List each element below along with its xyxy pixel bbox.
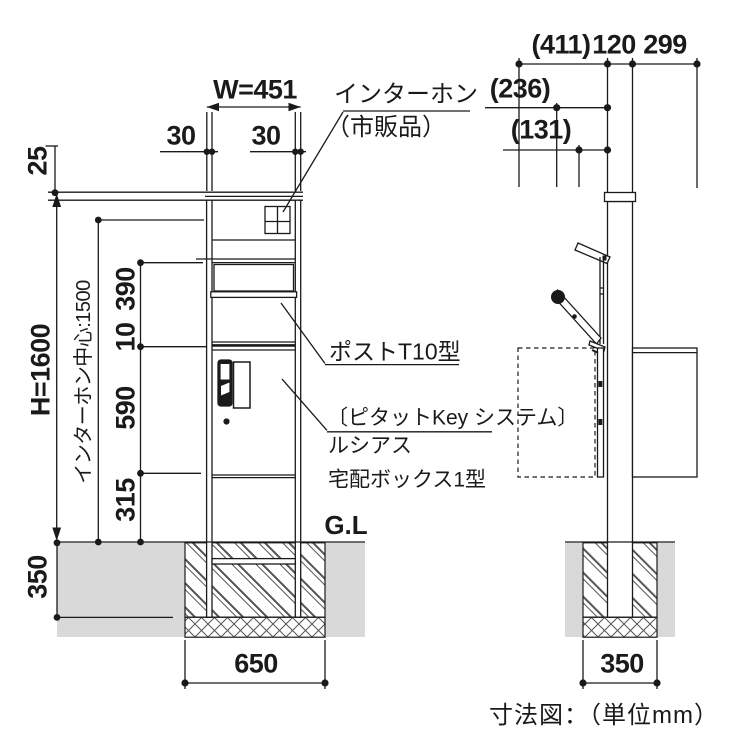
ground-side-right <box>657 543 675 637</box>
right-post <box>295 200 300 617</box>
ground-level-label: G.L <box>324 512 367 538</box>
dim-post-depth-label: 120 <box>592 32 636 59</box>
foundation-gravel-side <box>583 617 657 637</box>
intercom-note-label: （市販品） <box>326 116 446 140</box>
dim-post-width-right-label: 30 <box>251 123 280 150</box>
dim-box-section-label: 590 <box>113 386 140 430</box>
dim-flap-open-reach-label: (411) <box>531 32 590 59</box>
delivery-box-side <box>633 348 698 477</box>
foundation-tie-bar <box>212 559 295 564</box>
dim-foundation-width-front-label: 650 <box>234 651 278 678</box>
dim-foundation-depth-label: 350 <box>25 555 52 599</box>
side-post <box>608 202 633 618</box>
handle-plate <box>234 362 251 408</box>
dim-overall-height-label: H=1600 <box>28 324 55 416</box>
dim-post-width-left-label: 30 <box>166 123 195 150</box>
post-model-label: ポストT10型 <box>329 341 461 364</box>
ground-side-left <box>565 543 583 637</box>
dim-foundation-width-side-label: 350 <box>600 651 644 678</box>
drawing-caption: 寸法図：（単位mm） <box>489 704 719 728</box>
dim-post-section-label: 390 <box>113 267 140 311</box>
dim-flap-low-reach-label: (131) <box>511 117 572 144</box>
side-post-cap <box>605 193 636 202</box>
dim-leg-section-label: 315 <box>113 478 140 522</box>
left-post <box>207 200 212 617</box>
intercom-label: インターホン <box>334 83 478 107</box>
dim-gap-label: 10 <box>113 322 140 351</box>
dim-flap-mid-reach-label: (236) <box>490 76 551 103</box>
series-label: ルシアス <box>328 436 412 457</box>
door-face-side <box>598 348 604 477</box>
mail-slot <box>211 292 297 298</box>
post-model-leader <box>281 303 325 364</box>
key-system-leader <box>282 379 327 430</box>
mail-flap <box>214 265 294 292</box>
dim-intercom-center-label: インターホン中心:1500 <box>74 280 94 484</box>
dim-cap-offset-label: 25 <box>25 146 52 175</box>
ground-front-left <box>57 543 185 637</box>
key-system-label: 〔ピタットKey システム〕 <box>327 408 578 429</box>
foundation-gravel-front <box>185 617 325 637</box>
flap-knob <box>551 290 565 304</box>
dim-box-depth-label: 299 <box>643 32 687 59</box>
dim-overall-width-label: W=451 <box>213 77 297 104</box>
dimension-drawing-page: 25 H=1600 インターホン中心:1500 390 10 590 315 3… <box>0 0 740 755</box>
keyhole <box>223 418 229 424</box>
box-model-label: 宅配ボックス1型 <box>328 470 486 491</box>
ground-front-right <box>325 543 365 637</box>
